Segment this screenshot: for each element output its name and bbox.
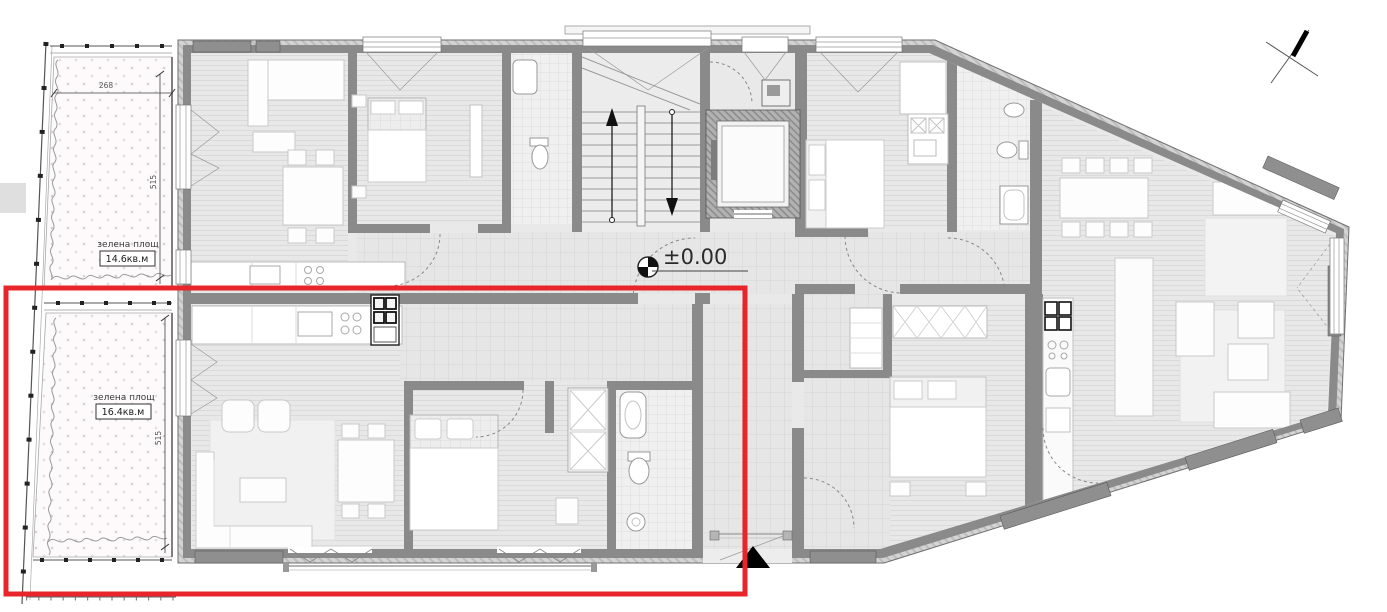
chair-icon [342,504,359,518]
pillow-icon [894,381,922,399]
chair-icon [342,424,359,438]
pillow-icon [928,381,956,399]
coffee-table-icon [253,132,295,152]
dishwasher-icon [1046,408,1070,432]
armchair-icon [1238,302,1274,338]
pillow-icon [399,101,423,114]
coffee-table-icon [240,478,286,502]
chair-icon [1110,158,1128,173]
sink-icon [1046,368,1070,396]
svg-text:515: 515 [154,431,163,446]
elevator-cab [722,126,784,202]
armchair-icon [258,400,290,432]
pillow-icon [809,145,825,175]
sofa-icon [1176,302,1214,356]
sink-icon [914,140,936,156]
washer-icon [627,513,645,531]
chair-icon [368,424,385,438]
chair-icon [288,228,306,243]
green-area-upper: 268 515 зелена площ 14.6кв.м [44,44,175,288]
sink-icon [250,266,280,284]
sofa-icon [1214,392,1290,428]
pillow-icon [415,419,441,439]
armchair-icon [222,400,254,432]
chair-icon [288,150,306,165]
chair-icon [316,150,334,165]
wardrobe-icon [568,388,608,472]
svg-text:515: 515 [149,175,158,190]
dining-table-icon [1060,178,1148,218]
toilet-icon [532,145,548,169]
chair-icon [1086,158,1104,173]
dining-table-icon [338,440,394,502]
dining-table-icon [283,167,343,225]
pillow-icon [809,180,825,210]
chair-icon [1062,222,1080,237]
area-value: 14.6кв.м [106,254,149,265]
oven-column-icon [371,295,399,345]
chair-icon [1086,222,1104,237]
rug-icon [1205,218,1287,296]
svg-text:268: 268 [99,81,114,90]
radiator-icon [470,105,482,177]
closet-icon [850,308,882,368]
window [176,250,191,284]
green-area-label: зелена площ [93,393,155,403]
kitchen-counter-icon [900,62,946,114]
wardrobe-icon [893,306,987,338]
area-value: 16.4кв.м [102,407,145,418]
floor-plan-canvas: 268 515 зелена площ 14.6кв.м 515 зелена … [0,0,1387,612]
sofa-icon [248,60,268,126]
toilet-icon [629,458,649,484]
kitchen-counter-icon [191,262,405,288]
green-area-label: зелена площ [97,240,159,250]
toilet-icon [997,142,1017,158]
building [176,26,1349,572]
sink-icon [298,312,332,336]
pillow-icon [371,101,395,114]
nightstand-icon [966,482,986,496]
sink-icon [1004,103,1024,117]
stair-rail [637,106,645,226]
nightstand-icon [352,95,366,107]
north-cross-icon [1266,30,1318,83]
adjacent-structure [0,183,26,213]
chair-icon [1134,158,1152,173]
chair-icon [1062,158,1080,173]
coffee-table-icon [1228,344,1268,380]
nightstand-icon [890,482,910,496]
chair-icon [1110,222,1128,237]
kitchen-island-icon [1115,258,1153,416]
chair-icon [368,504,385,518]
floor-plan-drawing: 268 515 зелена площ 14.6кв.м 515 зелена … [0,0,1387,612]
elevation-value: ±0.00 [663,245,727,269]
nightstand-icon [352,186,366,198]
pillow-icon [447,419,473,439]
chair-icon [1134,222,1152,237]
bench-icon [556,498,578,524]
chair-icon [316,228,334,243]
sink-icon [513,60,537,94]
green-area-lower: 515 зелена площ 16.4кв.м [33,301,172,562]
